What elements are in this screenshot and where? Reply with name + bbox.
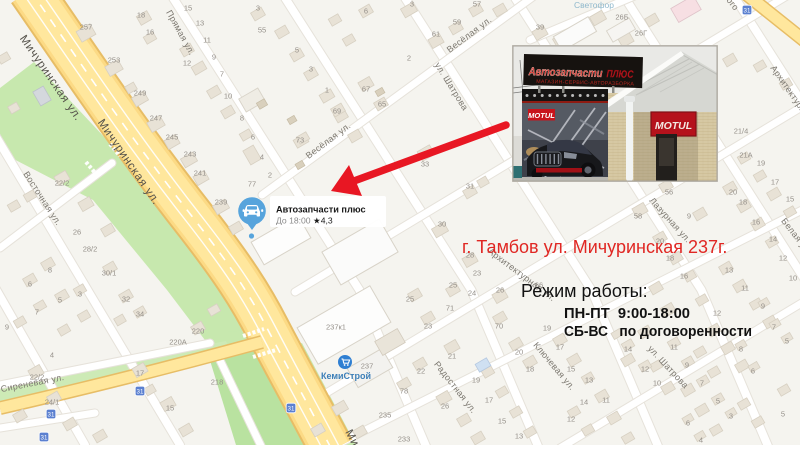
svg-text:253: 253 [108,56,121,65]
svg-text:2: 2 [407,54,411,63]
svg-text:15: 15 [786,195,794,204]
svg-text:15: 15 [184,4,192,13]
svg-text:26: 26 [496,286,504,295]
svg-text:9: 9 [212,53,216,62]
svg-text:11: 11 [670,343,678,352]
svg-text:16: 16 [680,272,688,281]
svg-text:77: 77 [248,180,256,189]
svg-text:57: 57 [473,0,481,9]
svg-text:КемиСтрой: КемиСтрой [321,371,371,381]
svg-text:17: 17 [136,369,144,378]
svg-text:26Б: 26Б [615,13,628,22]
svg-text:MOTUL: MOTUL [655,120,692,132]
svg-text:55: 55 [258,26,266,35]
svg-text:5: 5 [785,337,789,346]
svg-text:25: 25 [406,295,414,304]
svg-text:10: 10 [789,274,797,283]
svg-text:243: 243 [184,150,197,159]
svg-text:21: 21 [448,352,456,361]
svg-text:78: 78 [400,387,408,396]
svg-text:14: 14 [624,345,632,354]
svg-text:237: 237 [361,362,374,371]
svg-text:11: 11 [741,284,749,293]
svg-text:39: 39 [536,23,544,32]
svg-text:26: 26 [73,228,81,237]
svg-text:16: 16 [146,28,154,37]
svg-text:69: 69 [333,107,341,116]
svg-text:Автозапчасти: Автозапчасти [528,66,603,80]
svg-text:30/1: 30/1 [102,269,117,278]
svg-text:12: 12 [567,415,575,424]
svg-text:56: 56 [665,188,673,197]
svg-text:СБ-ВС по договоренности: СБ-ВС по договоренности [564,324,752,340]
svg-text:15: 15 [166,404,174,413]
svg-text:73: 73 [296,136,304,145]
svg-text:11: 11 [602,396,610,405]
svg-text:3: 3 [256,4,260,13]
svg-text:3: 3 [729,412,733,421]
svg-text:10: 10 [224,92,232,101]
svg-text:24: 24 [468,289,476,298]
svg-text:14: 14 [769,235,777,244]
svg-text:12: 12 [641,365,649,374]
svg-text:19: 19 [543,324,551,333]
svg-text:71: 71 [446,304,454,313]
svg-text:12: 12 [183,59,191,68]
svg-text:13: 13 [725,266,733,275]
svg-text:19: 19 [472,376,480,385]
svg-text:6: 6 [751,367,755,376]
svg-text:16: 16 [752,218,760,227]
svg-text:17: 17 [556,343,564,352]
svg-text:26: 26 [441,402,449,411]
svg-text:257: 257 [80,23,93,32]
svg-text:14: 14 [580,398,588,407]
svg-text:10: 10 [653,379,661,388]
svg-text:235: 235 [379,411,392,420]
svg-text:3: 3 [410,0,414,9]
svg-text:MOTUL: MOTUL [528,111,555,120]
svg-text:220: 220 [192,327,205,336]
svg-text:2: 2 [268,171,272,180]
svg-text:5: 5 [58,296,62,305]
svg-text:7: 7 [35,308,39,317]
svg-text:13: 13 [585,376,593,385]
svg-text:6: 6 [364,7,368,16]
svg-text:15: 15 [567,365,575,374]
svg-text:1: 1 [325,86,329,95]
svg-text:7: 7 [772,323,776,332]
svg-text:9: 9 [5,323,9,332]
svg-text:12: 12 [713,309,721,318]
svg-text:Автозапчасти плюс: Автозапчасти плюс [276,205,366,215]
svg-text:33: 33 [421,160,429,169]
svg-text:★4,3: ★4,3 [313,216,333,226]
svg-text:3: 3 [309,65,313,74]
svg-text:13: 13 [196,19,204,28]
svg-text:18: 18 [137,11,145,20]
svg-text:11: 11 [203,36,211,45]
svg-text:31: 31 [288,405,295,412]
svg-text:6: 6 [28,280,32,289]
svg-text:4: 4 [260,153,264,162]
svg-text:8: 8 [739,345,743,354]
svg-text:Режим работы:: Режим работы: [521,281,648,301]
svg-text:59: 59 [453,18,461,27]
svg-text:237к1: 237к1 [326,323,346,332]
svg-text:5: 5 [716,397,720,406]
svg-text:31: 31 [744,7,751,14]
svg-text:18: 18 [526,365,534,374]
svg-text:22/2: 22/2 [55,179,70,188]
svg-text:13: 13 [515,432,523,441]
svg-text:8: 8 [48,266,52,275]
svg-text:ПН-ПТ 9:00-18:00: ПН-ПТ 9:00-18:00 [564,306,690,322]
svg-text:8: 8 [240,114,244,123]
svg-text:24/1: 24/1 [45,398,60,407]
svg-text:31: 31 [137,388,144,395]
svg-text:9: 9 [761,302,765,311]
svg-text:До 18:00: До 18:00 [276,216,311,226]
svg-text:3: 3 [78,290,82,299]
svg-text:19: 19 [757,159,765,168]
svg-text:17: 17 [771,178,779,187]
svg-text:34: 34 [136,310,144,319]
svg-text:18: 18 [739,198,747,207]
svg-text:26Г: 26Г [635,29,647,38]
svg-text:247: 247 [150,114,163,123]
svg-text:6: 6 [686,419,690,428]
svg-text:67: 67 [362,85,370,94]
svg-text:5: 5 [295,46,299,55]
svg-text:220А: 220А [169,338,187,347]
svg-text:218: 218 [211,378,224,387]
svg-text:17: 17 [485,396,493,405]
svg-text:65: 65 [378,100,386,109]
svg-text:31: 31 [48,411,55,418]
svg-text:5: 5 [781,410,785,419]
svg-text:7: 7 [700,379,704,388]
svg-text:241: 241 [194,169,207,178]
svg-text:31: 31 [466,182,474,191]
svg-text:г. Тамбов ул. Мичуринская 237г: г. Тамбов ул. Мичуринская 237г. [462,237,727,257]
svg-text:30: 30 [438,220,446,229]
svg-text:28/2: 28/2 [83,245,98,254]
svg-text:9: 9 [687,212,691,221]
svg-text:ПЛЮС: ПЛЮС [606,68,634,81]
svg-text:249: 249 [134,89,147,98]
svg-text:4: 4 [50,351,54,360]
svg-text:7: 7 [220,70,224,79]
svg-text:15: 15 [498,417,506,426]
svg-text:21/4: 21/4 [734,127,749,136]
svg-text:21А: 21А [739,151,752,160]
svg-text:233: 233 [398,435,411,444]
svg-text:4: 4 [699,436,703,445]
svg-text:23: 23 [473,269,481,278]
svg-text:6: 6 [251,133,255,142]
svg-text:9: 9 [685,361,689,370]
svg-text:32: 32 [122,295,130,304]
svg-text:22: 22 [417,367,425,376]
svg-text:239: 239 [215,198,228,207]
svg-text:245: 245 [166,133,179,142]
svg-text:25: 25 [449,281,457,290]
svg-text:20: 20 [515,348,523,357]
svg-text:Светофор: Светофор [574,0,614,10]
svg-text:23: 23 [424,322,432,331]
svg-text:58: 58 [634,212,642,221]
svg-text:61: 61 [432,30,440,39]
svg-text:12: 12 [779,254,787,263]
svg-text:31: 31 [41,434,48,441]
svg-text:20: 20 [729,188,737,197]
svg-text:70: 70 [495,322,503,331]
